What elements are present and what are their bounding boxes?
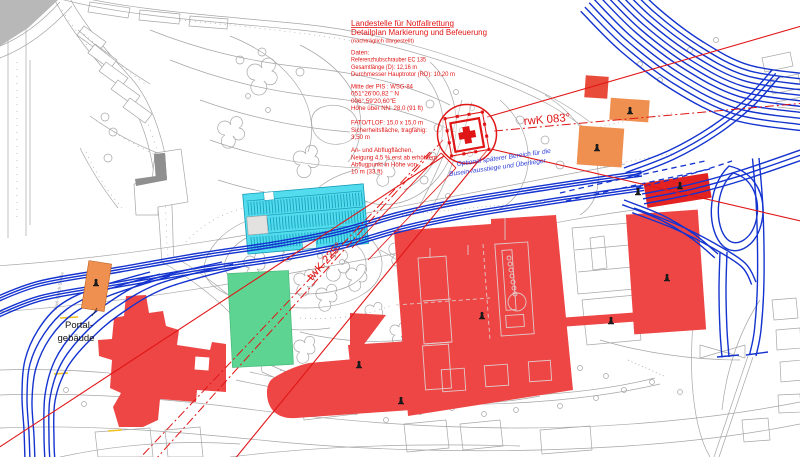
svg-text:An- und Abflugflächen,: An- und Abflugflächen, [351,147,413,154]
svg-text:3,50 m: 3,50 m [351,134,370,141]
svg-text:Detailplan Markierung und Befe: Detailplan Markierung und Befeuerung [351,27,487,37]
svg-text:Abflugpunkt in Höhe von: Abflugpunkt in Höhe von [351,162,418,169]
svg-text:Sicherheitsfläche, tragfähig:: Sicherheitsfläche, tragfähig: [351,127,427,134]
svg-text:Portal-: Portal- [65,320,93,331]
svg-text:FATO/TLOF: 15,0 x 15,0 m: FATO/TLOF: 15,0 x 15,0 m [351,120,423,127]
svg-text:Höhe über NN: 28,0 (91 ft): Höhe über NN: 28,0 (91 ft) [351,105,423,112]
svg-text:051°26'00,82 " N: 051°26'00,82 " N [351,91,399,98]
svg-text:Mitte der PIS : WSG-84: Mitte der PIS : WSG-84 [351,84,414,91]
svg-text:Referenzhubschrauber EC 135: Referenzhubschrauber EC 135 [351,57,426,64]
svg-text:Gesamtlänge (D): 12,16 m: Gesamtlänge (D): 12,16 m [351,64,417,71]
svg-text:Daten:: Daten: [351,50,370,57]
svg-text:gebäude: gebäude [58,333,95,344]
svg-text:Durchmesser Hauptrotor (RD): 1: Durchmesser Hauptrotor (RD): 10,20 m [351,71,455,78]
svg-text:Neigung 4,5 % erst ab erhöhtem: Neigung 4,5 % erst ab erhöhtem [351,154,437,161]
svg-text:006°,59'20,60"E: 006°,59'20,60"E [351,98,396,105]
svg-text:(nachträglich dargestellt): (nachträglich dargestellt) [351,39,414,45]
svg-text:10 m (33 ft): 10 m (33 ft) [351,169,383,176]
